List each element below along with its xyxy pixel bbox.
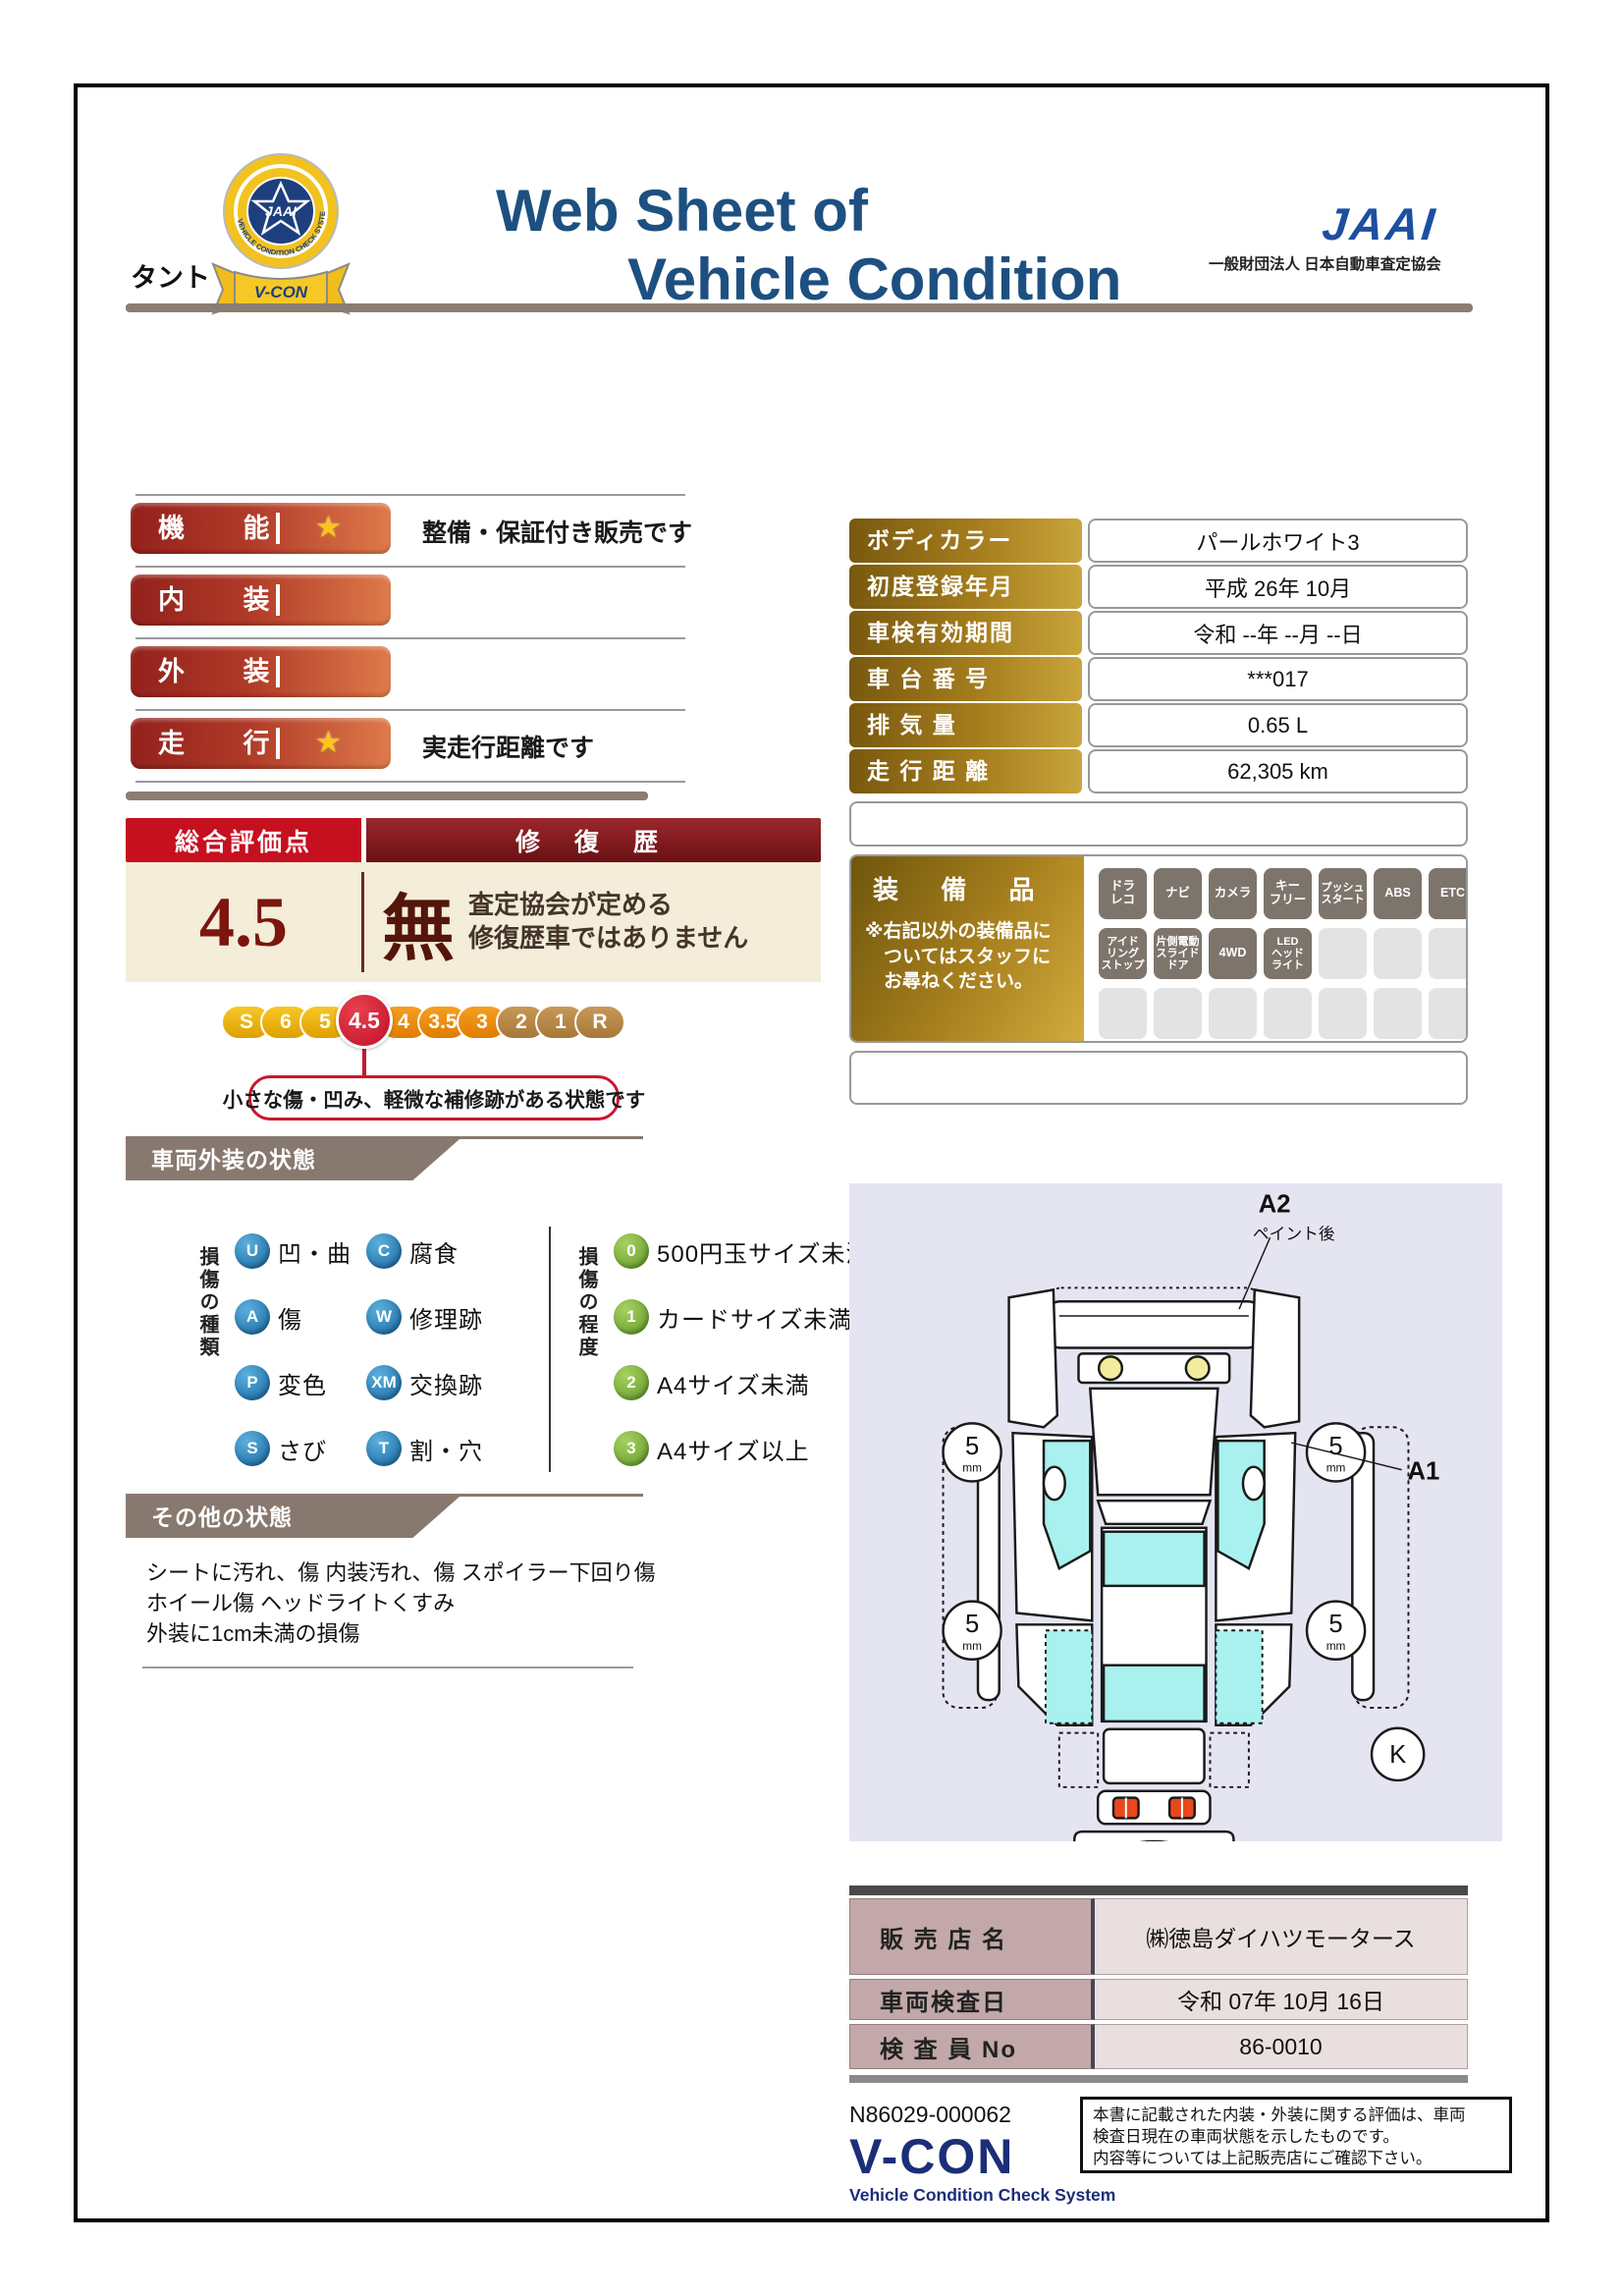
- equipment-badge-empty: [1099, 988, 1147, 1039]
- equipment-gold-bg: 装 備 品 ※右記以外の装備品に ついてはスタッフに お尋ねください。: [851, 856, 1084, 1041]
- tread-unit: mm: [962, 1639, 982, 1653]
- divider: [135, 637, 685, 639]
- kind-label: 傷: [278, 1300, 302, 1335]
- legend-item: 2 A4サイズ未満: [614, 1365, 810, 1400]
- scale-selected-chip: 4.5: [336, 992, 393, 1049]
- jaai-org-name: 一般財団法人 日本自動車査定協会: [1209, 252, 1441, 274]
- scale-chip: R: [574, 1005, 625, 1040]
- diagram-label-a2: A2: [1259, 1191, 1291, 1219]
- kind-axis-label: 損傷の種類: [193, 1246, 222, 1359]
- equipment-badge-empty: [1264, 988, 1312, 1039]
- dealer-row: 販 売 店 名 ㈱徳島ダイハツモータース: [849, 1898, 1468, 1975]
- degree-label: カードサイズ未満: [657, 1300, 852, 1335]
- dealer-row: 検 査 員 No 86-0010: [849, 2024, 1468, 2069]
- equipment-badge-empty: [1429, 928, 1468, 979]
- divider: [135, 494, 685, 496]
- info-label: 走 行 距 離: [849, 749, 1082, 793]
- kind-code-icon: T: [366, 1431, 402, 1466]
- divider-rule-top: [126, 303, 1473, 312]
- equipment-badge-empty: [1319, 928, 1367, 979]
- section-title-other: その他の状態: [126, 1497, 460, 1538]
- kind-code-icon: XM: [366, 1365, 402, 1400]
- legend-item: A 傷: [235, 1299, 302, 1335]
- serial-number: N86029-000062: [849, 2102, 1011, 2128]
- equipment-badges: ドラ レコ ナビ カメラ キー フリー プッシュ スタート ABS ETC アイ…: [1099, 868, 1468, 1039]
- scale-callout: 小さな傷・凹み、軽微な補修跡がある状態です: [248, 1075, 620, 1121]
- table-bottom-bar: [849, 2075, 1468, 2083]
- repair-history-note: 査定協会が定める 修復歴車ではありません: [468, 889, 748, 956]
- overall-body: 4.5 無 査定協会が定める 修復歴車ではありません: [126, 862, 821, 982]
- tread-value: 5: [965, 1611, 979, 1638]
- rating-divider: [276, 513, 280, 544]
- info-value: ***017: [1088, 657, 1468, 701]
- rating-bar-function: 機 能 ★: [131, 503, 391, 554]
- legend-item: C 腐食: [366, 1233, 459, 1269]
- kind-label: 腐食: [409, 1234, 459, 1269]
- kind-code-icon: U: [235, 1233, 270, 1269]
- kind-label: さび: [278, 1432, 327, 1466]
- callout-stem: [362, 1048, 366, 1077]
- rating-bar-exterior: 外 装: [131, 646, 391, 697]
- divider: [135, 709, 685, 711]
- equipment-badge: LED ヘッド ライト: [1264, 928, 1312, 979]
- legend-item: 1 カードサイズ未満: [614, 1299, 852, 1335]
- sheet-frame: JAAI VEHICLE CONDITION CHECK SYSTEM V-CO…: [74, 83, 1549, 2222]
- equipment-badge-empty: [1319, 988, 1367, 1039]
- divider-rule: [126, 792, 648, 800]
- tread-unit: mm: [962, 1461, 982, 1475]
- table-top-bar: [849, 1886, 1468, 1895]
- degree-axis-label: 損傷の程度: [572, 1246, 601, 1359]
- badge-ribbon-text: V-CON: [254, 283, 308, 301]
- equipment-badge-empty: [1154, 988, 1202, 1039]
- vehicle-name: タント: [131, 256, 210, 295]
- degree-code-icon: 3: [614, 1431, 649, 1466]
- info-value: パールホワイト3: [1088, 519, 1468, 563]
- info-value: 62,305 km: [1088, 749, 1468, 793]
- rating-divider: [276, 656, 280, 687]
- info-value: 令和 --年 --月 --日: [1088, 611, 1468, 655]
- legend-item: U 凹・曲: [235, 1233, 352, 1269]
- kind-label: 割・穴: [409, 1432, 483, 1466]
- dealer-row: 車両検査日 令和 07年 10月 16日: [849, 1979, 1468, 2020]
- equipment-panel: 装 備 品 ※右記以外の装備品に ついてはスタッフに お尋ねください。 ドラ レ…: [849, 854, 1468, 1043]
- info-label: 車 台 番 号: [849, 657, 1082, 701]
- kind-code-icon: W: [366, 1299, 402, 1335]
- vehicle-condition-sheet: JAAI VEHICLE CONDITION CHECK SYSTEM V-CO…: [0, 0, 1623, 2296]
- score-scale: S 6 5 4 3.5 3 2 1 R 4.5 小さな傷・凹み、軽微な補修跡があ…: [221, 1005, 653, 1122]
- info-label: 排 気 量: [849, 703, 1082, 747]
- car-damage-diagram: A2 ペイント後 A1 K 5 mm 5 mm 5 mm 5 mm: [849, 1183, 1502, 1841]
- vcon-logo-text: V-CON: [849, 2128, 1014, 2185]
- disclaimer-box: 本書に記載された内装・外装に関する評価は、車両 検査日現在の車両状態を示したもの…: [1080, 2097, 1512, 2173]
- equipment-badge: カメラ: [1209, 868, 1257, 919]
- kind-code-icon: P: [235, 1365, 270, 1400]
- tread-value: 5: [1328, 1611, 1342, 1638]
- overall-header: 総合評価点 修 復 歴: [126, 818, 821, 862]
- equipment-badge: 片側電動 スライド ドア: [1154, 928, 1202, 979]
- equipment-badge-empty: [1374, 988, 1422, 1039]
- empty-note-box: [849, 1051, 1468, 1105]
- kind-label: 凹・曲: [278, 1234, 352, 1269]
- degree-label: A4サイズ未満: [657, 1366, 810, 1400]
- star-icon: ★: [315, 511, 342, 545]
- degree-label: 500円玉サイズ未満: [657, 1234, 870, 1269]
- section-line: [126, 1136, 643, 1139]
- dealer-label: 車両検査日: [849, 1979, 1095, 2020]
- equipment-badge-empty: [1429, 988, 1468, 1039]
- degree-label: A4サイズ以上: [657, 1432, 810, 1466]
- equipment-title: 装 備 品: [873, 870, 1052, 906]
- legend-item: 0 500円玉サイズ未満: [614, 1233, 870, 1269]
- tread-unit: mm: [1326, 1639, 1346, 1653]
- section-line: [126, 1494, 643, 1497]
- overall-score-value: 4.5: [126, 862, 361, 982]
- damage-legend: 損傷の種類 U 凹・曲 C 腐食 A 傷 W 修理跡 P 変色 XM 交換跡 S…: [193, 1219, 841, 1484]
- equipment-badge: ナビ: [1154, 868, 1202, 919]
- legend-item: T 割・穴: [366, 1431, 483, 1466]
- badge-center-text: JAAI: [265, 203, 298, 219]
- tread-unit: mm: [1326, 1461, 1346, 1475]
- info-label: 初度登録年月: [849, 565, 1082, 609]
- rating-label: 外 装: [158, 646, 296, 697]
- equipment-badge: 4WD: [1209, 928, 1257, 979]
- degree-code-icon: 1: [614, 1299, 649, 1335]
- divider: [142, 1667, 633, 1668]
- rating-divider: [276, 728, 280, 759]
- overall-score-header: 総合評価点: [126, 818, 361, 862]
- section-title-exterior: 車両外装の状態: [126, 1139, 460, 1180]
- rating-label: 内 装: [158, 574, 296, 626]
- equipment-badge: プッシュ スタート: [1319, 868, 1367, 919]
- info-value: 0.65 L: [1088, 703, 1468, 747]
- kind-label: 変色: [278, 1366, 327, 1400]
- rating-divider: [276, 584, 280, 616]
- diagram-label-a2-note: ペイント後: [1253, 1225, 1335, 1243]
- sheet-title-line1: Web Sheet of: [496, 182, 868, 241]
- kind-code-icon: A: [235, 1299, 270, 1335]
- rating-note: 実走行距離です: [422, 729, 594, 764]
- divider: [135, 566, 685, 568]
- star-icon: ★: [315, 726, 342, 760]
- tread-value: 5: [965, 1433, 979, 1460]
- jaai-logo: JAAI: [1320, 197, 1439, 250]
- rating-label: 機 能: [158, 503, 296, 554]
- repair-history-mark: 無: [382, 870, 455, 975]
- kind-label: 交換跡: [409, 1366, 483, 1400]
- dealer-value: 令和 07年 10月 16日: [1095, 1979, 1468, 2020]
- tread-value: 5: [1328, 1433, 1342, 1460]
- legend-divider: [549, 1227, 551, 1472]
- equipment-badge-empty: [1209, 988, 1257, 1039]
- equipment-badge: ETC: [1429, 868, 1468, 919]
- legend-item: XM 交換跡: [366, 1365, 483, 1400]
- car-diagram-graphic: A2 ペイント後 A1 K 5 mm 5 mm 5 mm 5 mm: [849, 1183, 1502, 1841]
- repair-history-header: 修 復 歴: [366, 818, 821, 862]
- equipment-badge-empty: [1374, 928, 1422, 979]
- dealer-label: 検 査 員 No: [849, 2024, 1095, 2069]
- equipment-badge: キー フリー: [1264, 868, 1312, 919]
- equipment-badge: ドラ レコ: [1099, 868, 1147, 919]
- kind-label: 修理跡: [409, 1300, 483, 1335]
- equipment-badge: アイド リング ストップ: [1099, 928, 1147, 979]
- info-label: ボディカラー: [849, 519, 1082, 563]
- dealer-value: 86-0010: [1095, 2024, 1468, 2069]
- equipment-note: ※右記以外の装備品に ついてはスタッフに お尋ねください。: [865, 919, 1051, 995]
- legend-item: W 修理跡: [366, 1299, 483, 1335]
- dealer-label: 販 売 店 名: [849, 1898, 1095, 1975]
- empty-note-box: [849, 801, 1468, 847]
- sheet-title-line2: Vehicle Condition: [627, 250, 1121, 309]
- rating-bar-interior: 内 装: [131, 574, 391, 626]
- rating-bars: 機 能 ★ 整備・保証付き販売です 内 装 外 装 走 行 ★ 実走行距離です: [126, 494, 774, 789]
- legend-item: S さび: [235, 1431, 327, 1466]
- degree-code-icon: 2: [614, 1365, 649, 1400]
- kind-code-icon: S: [235, 1431, 270, 1466]
- legend-item: 3 A4サイズ以上: [614, 1431, 810, 1466]
- rating-note: 整備・保証付き販売です: [422, 514, 692, 549]
- vehicle-info-table: ボディカラー パールホワイト3 初度登録年月 平成 26年 10月 車検有効期間…: [849, 519, 1468, 795]
- other-condition-text: シートに汚れ、傷 内装汚れ、傷 スポイラー下回り傷 ホイール傷 ヘッドライトくす…: [146, 1558, 696, 1649]
- dealer-value: ㈱徳島ダイハツモータース: [1095, 1898, 1468, 1975]
- rating-label: 走 行: [158, 718, 296, 769]
- equipment-badge: ABS: [1374, 868, 1422, 919]
- info-label: 車検有効期間: [849, 611, 1082, 655]
- vcon-logo-subtitle: Vehicle Condition Check System: [849, 2185, 1115, 2206]
- rating-bar-mileage: 走 行 ★: [131, 718, 391, 769]
- info-value: 平成 26年 10月: [1088, 565, 1468, 609]
- degree-code-icon: 0: [614, 1233, 649, 1269]
- kind-code-icon: C: [366, 1233, 402, 1269]
- dealer-table: 販 売 店 名 ㈱徳島ダイハツモータース 車両検査日 令和 07年 10月 16…: [849, 1886, 1468, 2083]
- diagram-label-k: K: [1389, 1741, 1406, 1769]
- diagram-label-a1: A1: [1407, 1458, 1439, 1486]
- divider: [135, 781, 685, 783]
- legend-item: P 変色: [235, 1365, 327, 1400]
- vertical-separator: [361, 872, 364, 972]
